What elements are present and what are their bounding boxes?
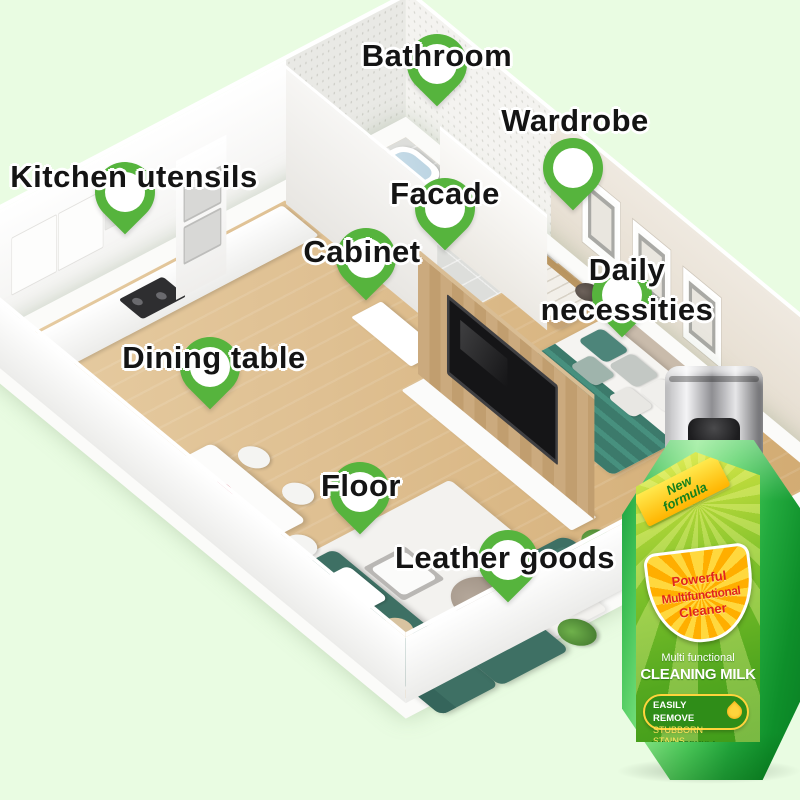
burner	[154, 291, 169, 301]
new-formula-ribbon: New formula	[633, 455, 730, 527]
product-subtitle: Multi functional	[636, 652, 760, 664]
label-leather-goods: Leather goods	[385, 540, 625, 576]
kitchen-upper-cabinet	[11, 214, 56, 296]
stain-removal-badge: EASILY REMOVE STUBBORN STAINS	[643, 694, 749, 730]
powerful-cleaner-badge: Powerful Multifunctional Cleaner	[643, 542, 760, 648]
label-daily-necessities: Daily necessities	[532, 250, 722, 330]
label-cabinet: Cabinet	[272, 234, 452, 270]
badge-highlight-line1: EASILY REMOVE	[653, 699, 729, 725]
bottle-label: New formula Powerful Multifunctional Cle…	[636, 452, 760, 742]
advert-image: Bathroom Wardrobe Kitchen utensils Facad…	[0, 0, 800, 800]
label-bathroom: Bathroom	[337, 38, 537, 74]
product-title: CLEANING MILK	[636, 666, 760, 683]
cleaner-product-bottle: New formula Powerful Multifunctional Cle…	[610, 360, 800, 790]
label-dining-table: Dining table	[104, 340, 324, 376]
burner	[130, 296, 145, 306]
label-facade: Facade	[355, 176, 535, 212]
label-kitchen-utensils: Kitchen utensils	[4, 159, 264, 195]
label-wardrobe: Wardrobe	[475, 103, 675, 139]
label-floor: Floor	[291, 468, 431, 504]
